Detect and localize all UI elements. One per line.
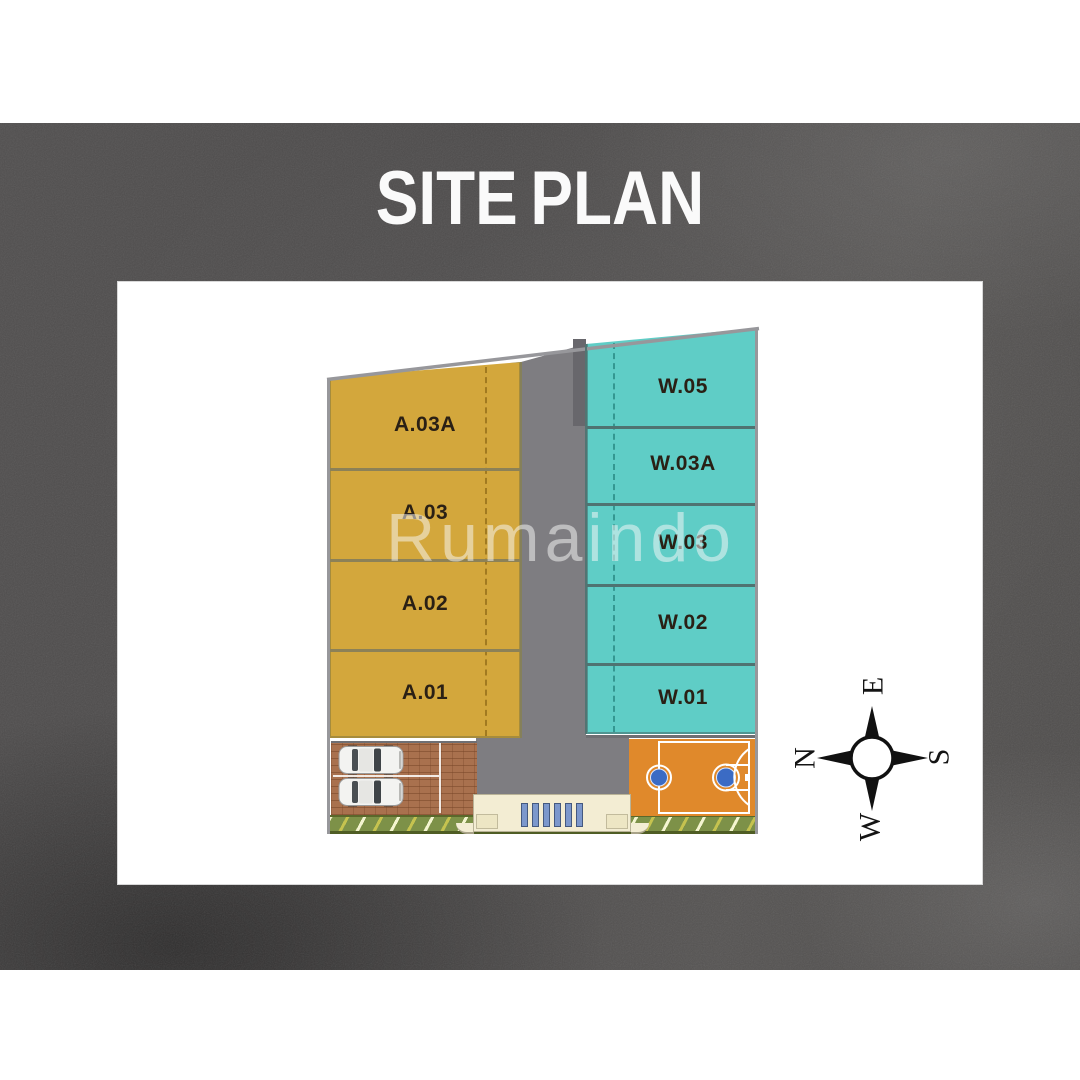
parking-stall-line (439, 743, 441, 813)
page-title: SITE PLAN (86, 156, 993, 242)
car-icon (338, 777, 404, 807)
road-shaded-edge (573, 339, 586, 426)
watermark-text: Rumaindo (386, 504, 736, 572)
lot-a-02: A.02 (329, 592, 521, 616)
lot-divider (586, 426, 758, 429)
lot-w-05: W.05 (586, 375, 758, 399)
lot-divider (329, 468, 521, 471)
lot-a-01: A.01 (329, 681, 521, 705)
gate-pillar (476, 814, 498, 829)
lot-divider (329, 649, 521, 652)
compass-west-label: W (854, 812, 887, 841)
gate-pillar (606, 814, 628, 829)
lot-w-03a: W.03A (586, 452, 758, 476)
lot-divider (586, 663, 758, 666)
gate-bar-icon (543, 803, 550, 827)
lot-divider (586, 584, 758, 587)
compass-north-label: N (791, 747, 822, 769)
lot-court-divider (586, 735, 758, 738)
gate-bar-icon (532, 803, 539, 827)
gate-bar-icon (554, 803, 561, 827)
lot-a-03a: A.03A (329, 413, 521, 437)
site-plan-panel: A.03A A.03 A.02 A.01 W.05 W.03A W.03 W.0… (117, 281, 983, 885)
compass-rose-icon: N E S W (791, 661, 961, 861)
basketball-court (629, 739, 758, 816)
lot-w-01: W.01 (586, 686, 758, 710)
gate-bar-icon (576, 803, 583, 827)
compass-east-label: E (857, 677, 890, 695)
lot-w-02: W.02 (586, 611, 758, 635)
gate-bar-icon (565, 803, 572, 827)
compass-south-label: S (923, 749, 956, 766)
car-icon (338, 745, 404, 775)
site-plan-poster: SITE PLAN A.03A A.03 A.02 A.01 W.05 W.03… (0, 0, 1080, 1080)
gate-bar-icon (521, 803, 528, 827)
